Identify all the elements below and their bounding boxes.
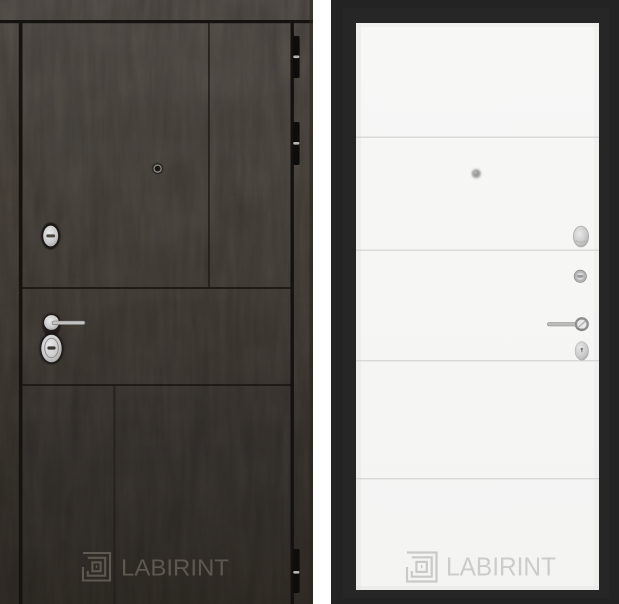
svg-text:LABIRINT: LABIRINT <box>121 554 229 580</box>
svg-text:LABIRINT: LABIRINT <box>446 552 556 582</box>
